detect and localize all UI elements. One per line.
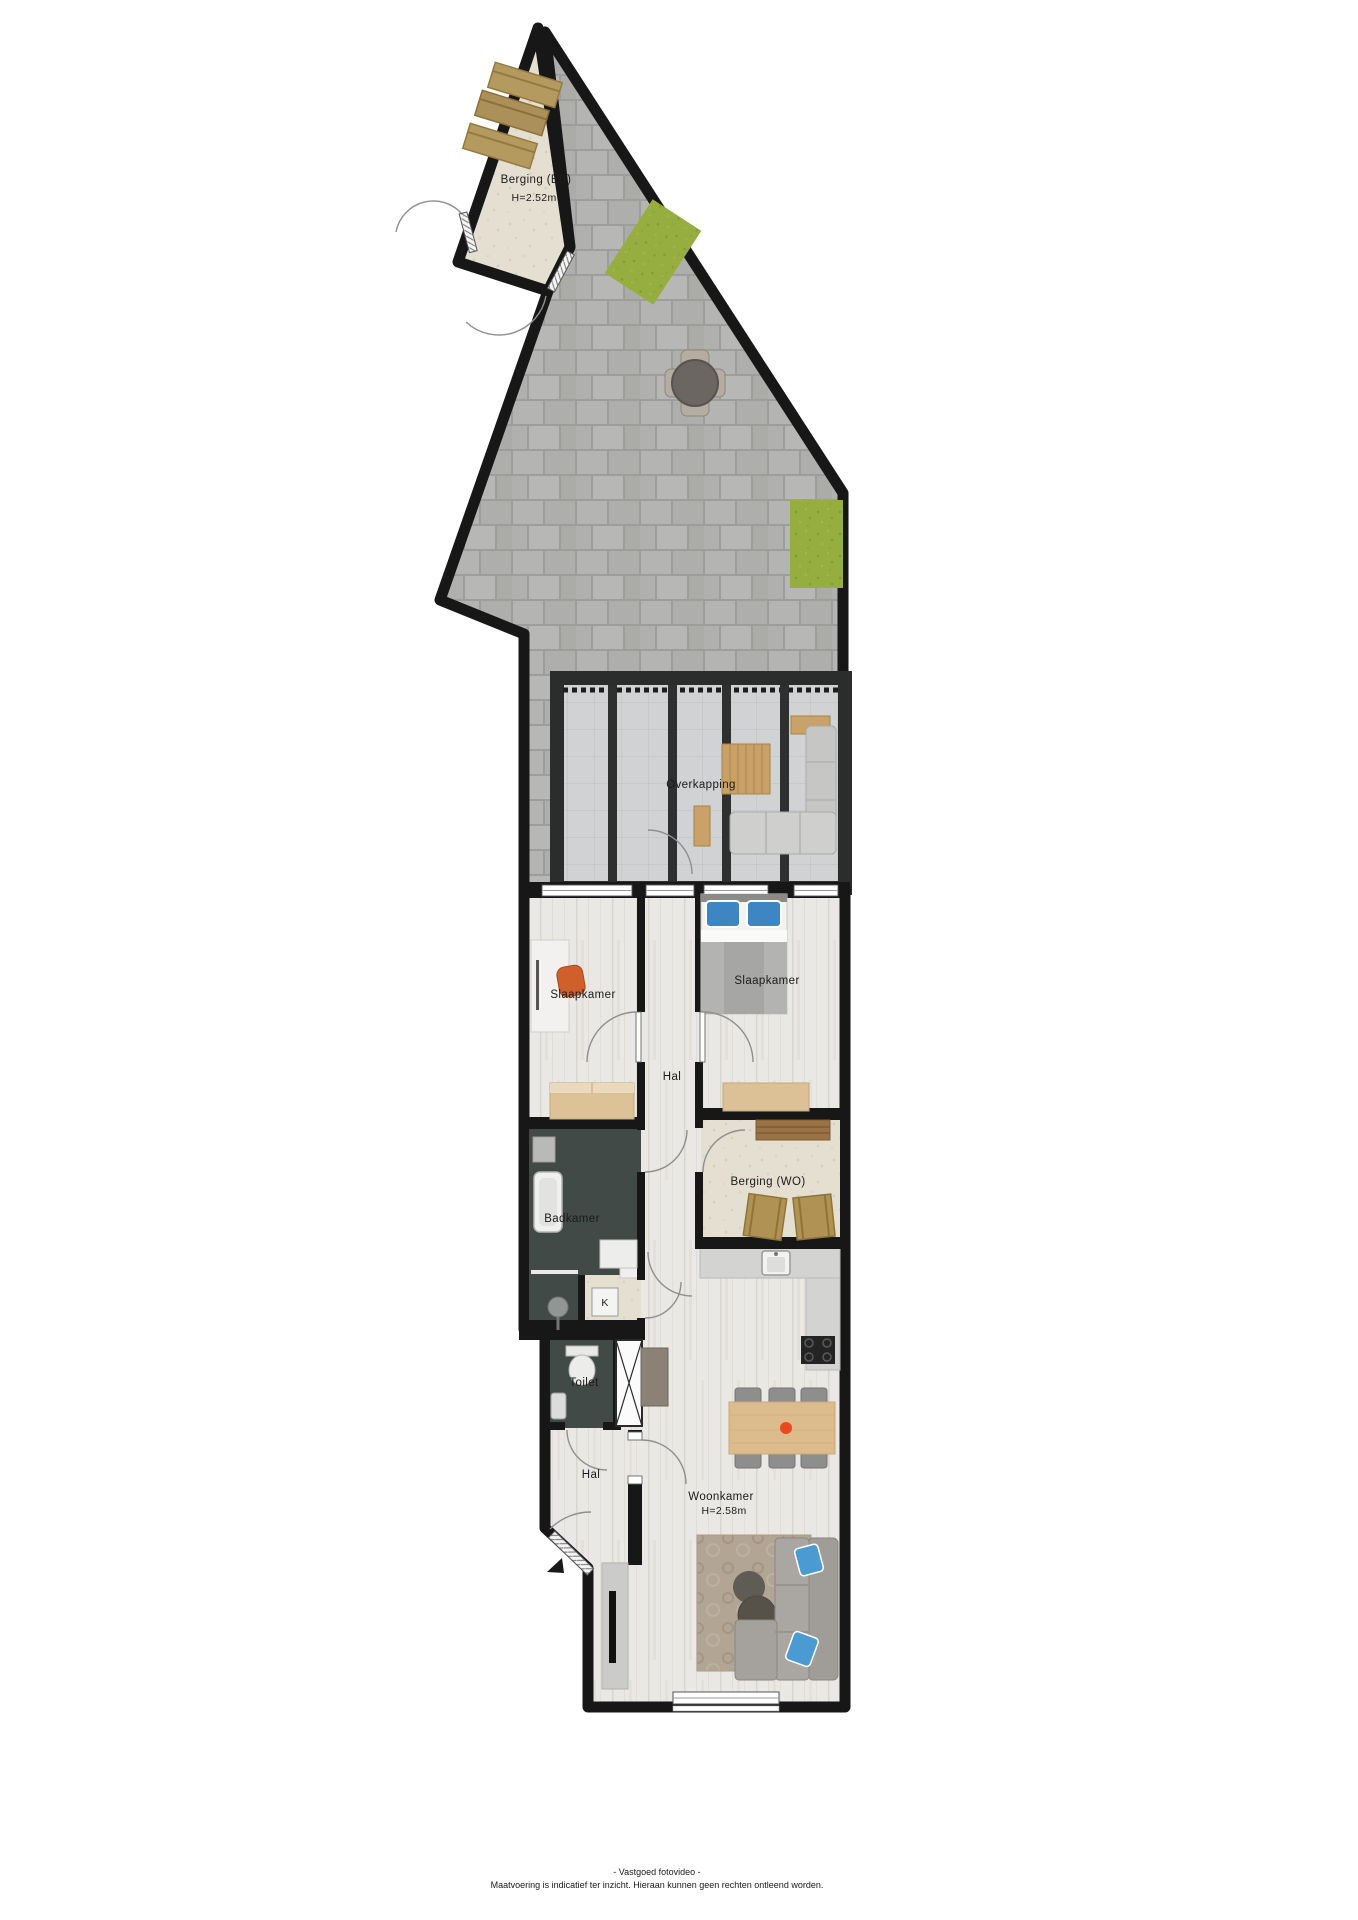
hall-cabinet-icon [641,1348,668,1406]
bench-icon [723,1083,809,1111]
pillow-icon [747,901,781,927]
slaapkamer-right-label: Slaapkamer [734,975,799,987]
slaapkamer-left-label: Slaapkamer [550,989,615,1001]
floorplan-svg: Overkapping [0,0,1358,1920]
shed-door-arc-icon [396,201,462,232]
tv-icon [609,1591,616,1663]
footer-line1: - Vastgoed fotovideo - [0,1866,1314,1879]
floorplan: Overkapping [0,0,1358,1920]
door-frame-icon [628,1476,642,1484]
stove-icon [801,1336,835,1364]
hal-beneden-label: Hal [582,1469,600,1481]
berging-eb-label: Berging (EB) [501,174,572,186]
desk-handle [536,960,539,1010]
toilet-label: Toilet [569,1377,599,1389]
footer-line2: Maatvoering is indicatief ter inzicht. H… [0,1879,1314,1892]
woonkamer-label: Woonkamer [688,1491,753,1503]
fruit-bowl-icon [780,1422,792,1434]
woonkamer-height: H=2.58m [702,1505,747,1517]
shaft-icon [616,1340,642,1426]
door-leaf-icon [636,1012,641,1062]
overkapping-label: Overkapping [666,779,736,791]
tv-unit-icon [602,1563,628,1689]
glass-mullion [608,685,617,881]
room-overkapping: Overkapping [557,678,845,888]
footer: - Vastgoed fotovideo - Maatvoering is in… [0,1866,1314,1892]
door-frame-icon [628,1432,642,1440]
bed-icon [550,1083,634,1119]
side-cabinet-icon [694,806,710,846]
grass-patch-lower [790,500,843,588]
kast-label: K [601,1297,608,1309]
berging-wo-label: Berging (WO) [730,1176,805,1188]
dining-set-icon [729,1388,835,1468]
sink-icon [762,1251,790,1275]
small-sink-icon [551,1393,566,1419]
window-icon [673,1692,779,1711]
shelf-icon [756,1120,830,1140]
berging-eb-height: H=2.52m [512,192,557,204]
entrance-arrow-icon [547,1558,564,1573]
shower-tray-icon [600,1240,637,1268]
pillow-icon [706,901,740,927]
washbasin-icon [533,1137,555,1162]
door-leaf-icon [700,1012,705,1062]
hal-boven-label: Hal [663,1071,681,1083]
bed-icon [701,894,787,1014]
facade-windows [519,882,850,898]
badkamer-label: Badkamer [544,1213,600,1225]
